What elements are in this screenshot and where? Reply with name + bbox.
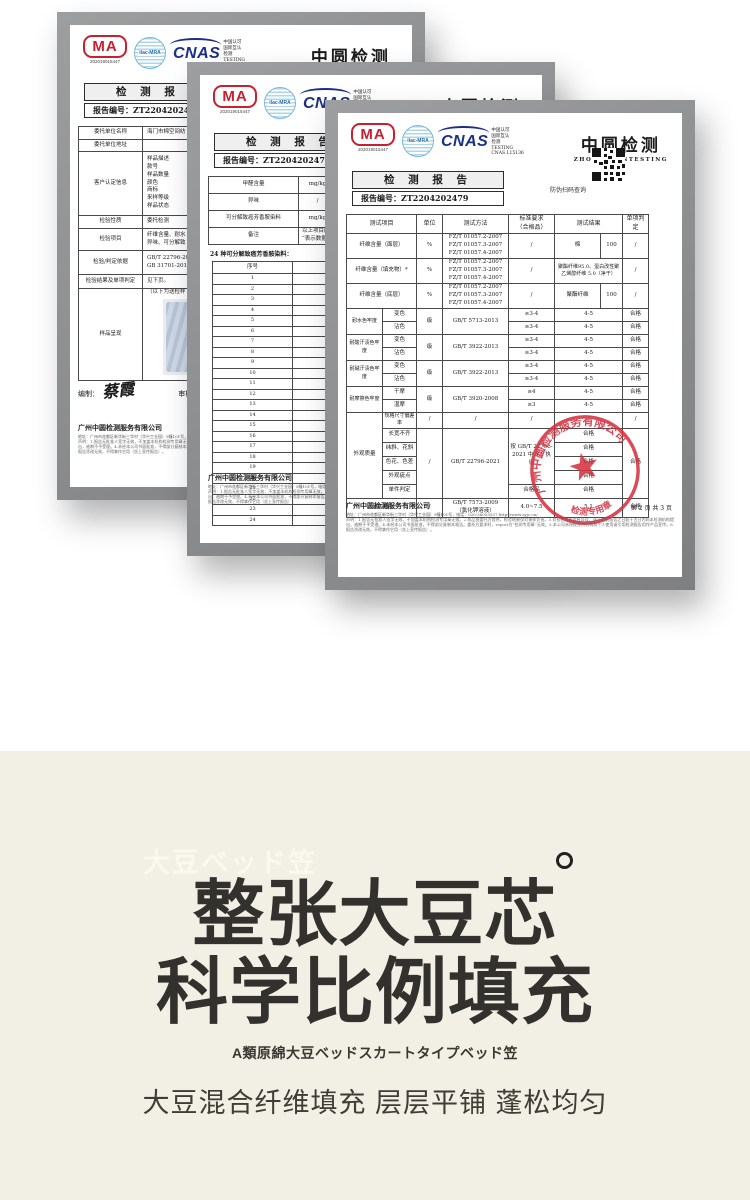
- prepared-signature: 蔡霞: [101, 375, 136, 403]
- ilac-mra-logo: ilac-MRA: [402, 125, 434, 157]
- cma-logo: MA 202019015447: [208, 85, 262, 114]
- ring-decoration-icon: [556, 852, 573, 869]
- hero-title-line1: 整张大豆芯: [0, 877, 750, 955]
- report-title: 检 测 报 告: [352, 171, 504, 189]
- hero-title-line2: 科学比例填充: [0, 955, 750, 1033]
- page-indicator: 第 2 页 共 3 页: [631, 503, 672, 512]
- hero-subtitle: A類原綿大豆ベッドスカートタイプベッド笠: [0, 1043, 750, 1063]
- test-results-table: 测试项目 单位 测试方法 标准要求 （合格品） 测试结果 单项判定 纤维含量（面…: [346, 214, 649, 518]
- qr-caption: 防伪扫码查询: [550, 185, 586, 194]
- page: MA 202019015447 ilac-MRA CNAS 中国认可 国际互认 …: [0, 0, 750, 1200]
- cma-logo: MA 202019015447: [346, 123, 400, 152]
- qr-code: [592, 148, 625, 181]
- hero-description: 大豆混合纤维填充 层层平铺 蓬松均匀: [0, 1081, 750, 1120]
- cnas-logo: CNAS: [441, 133, 488, 151]
- hero-title: 整张大豆芯 科学比例填充: [0, 877, 750, 1033]
- ilac-mra-logo: ilac-MRA: [134, 37, 166, 69]
- cert-footer: 第 2 页 共 3 页 广州中圆检测服务有限公司 地址：广州市花都区新华街三华村…: [346, 501, 674, 532]
- certificates-section: MA 202019015447 ilac-MRA CNAS 中国认可 国际互认 …: [0, 0, 750, 751]
- cnas-accreditation-text: 中国认可 国际互认 检测 TESTING CNAS L15136: [491, 128, 533, 157]
- report-number: 报告编号：ZT2204202479: [352, 191, 504, 206]
- cma-logo: MA 202019015447: [78, 35, 132, 64]
- hero-section: 大豆ベッド笠 整张大豆芯 科学比例填充 A類原綿大豆ベッドスカートタイプベッド笠…: [0, 751, 750, 1200]
- ilac-mra-logo: ilac-MRA: [264, 87, 296, 119]
- certificate-front: MA 202019015447 ilac-MRA CNAS 中国认可 国际互认 …: [325, 100, 695, 590]
- cnas-logo: CNAS: [173, 45, 220, 63]
